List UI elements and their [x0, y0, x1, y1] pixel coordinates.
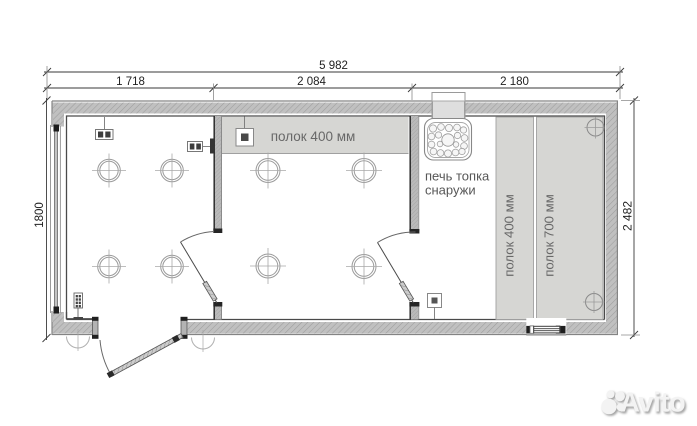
svg-text:печь топка: печь топка [425, 169, 490, 184]
svg-text:полок 700 мм: полок 700 мм [542, 194, 557, 277]
svg-text:полок 400 мм: полок 400 мм [271, 129, 356, 144]
svg-text:1800: 1800 [34, 202, 46, 228]
svg-text:5 982: 5 982 [319, 60, 348, 72]
svg-text:снаружи: снаружи [425, 183, 476, 198]
svg-text:2 482: 2 482 [621, 201, 635, 231]
svg-text:полок 400 мм: полок 400 мм [502, 194, 517, 277]
svg-text:2 180: 2 180 [500, 76, 529, 88]
svg-text:1 718: 1 718 [116, 76, 145, 88]
svg-text:Avito: Avito [620, 387, 685, 418]
svg-text:2 084: 2 084 [297, 76, 326, 88]
